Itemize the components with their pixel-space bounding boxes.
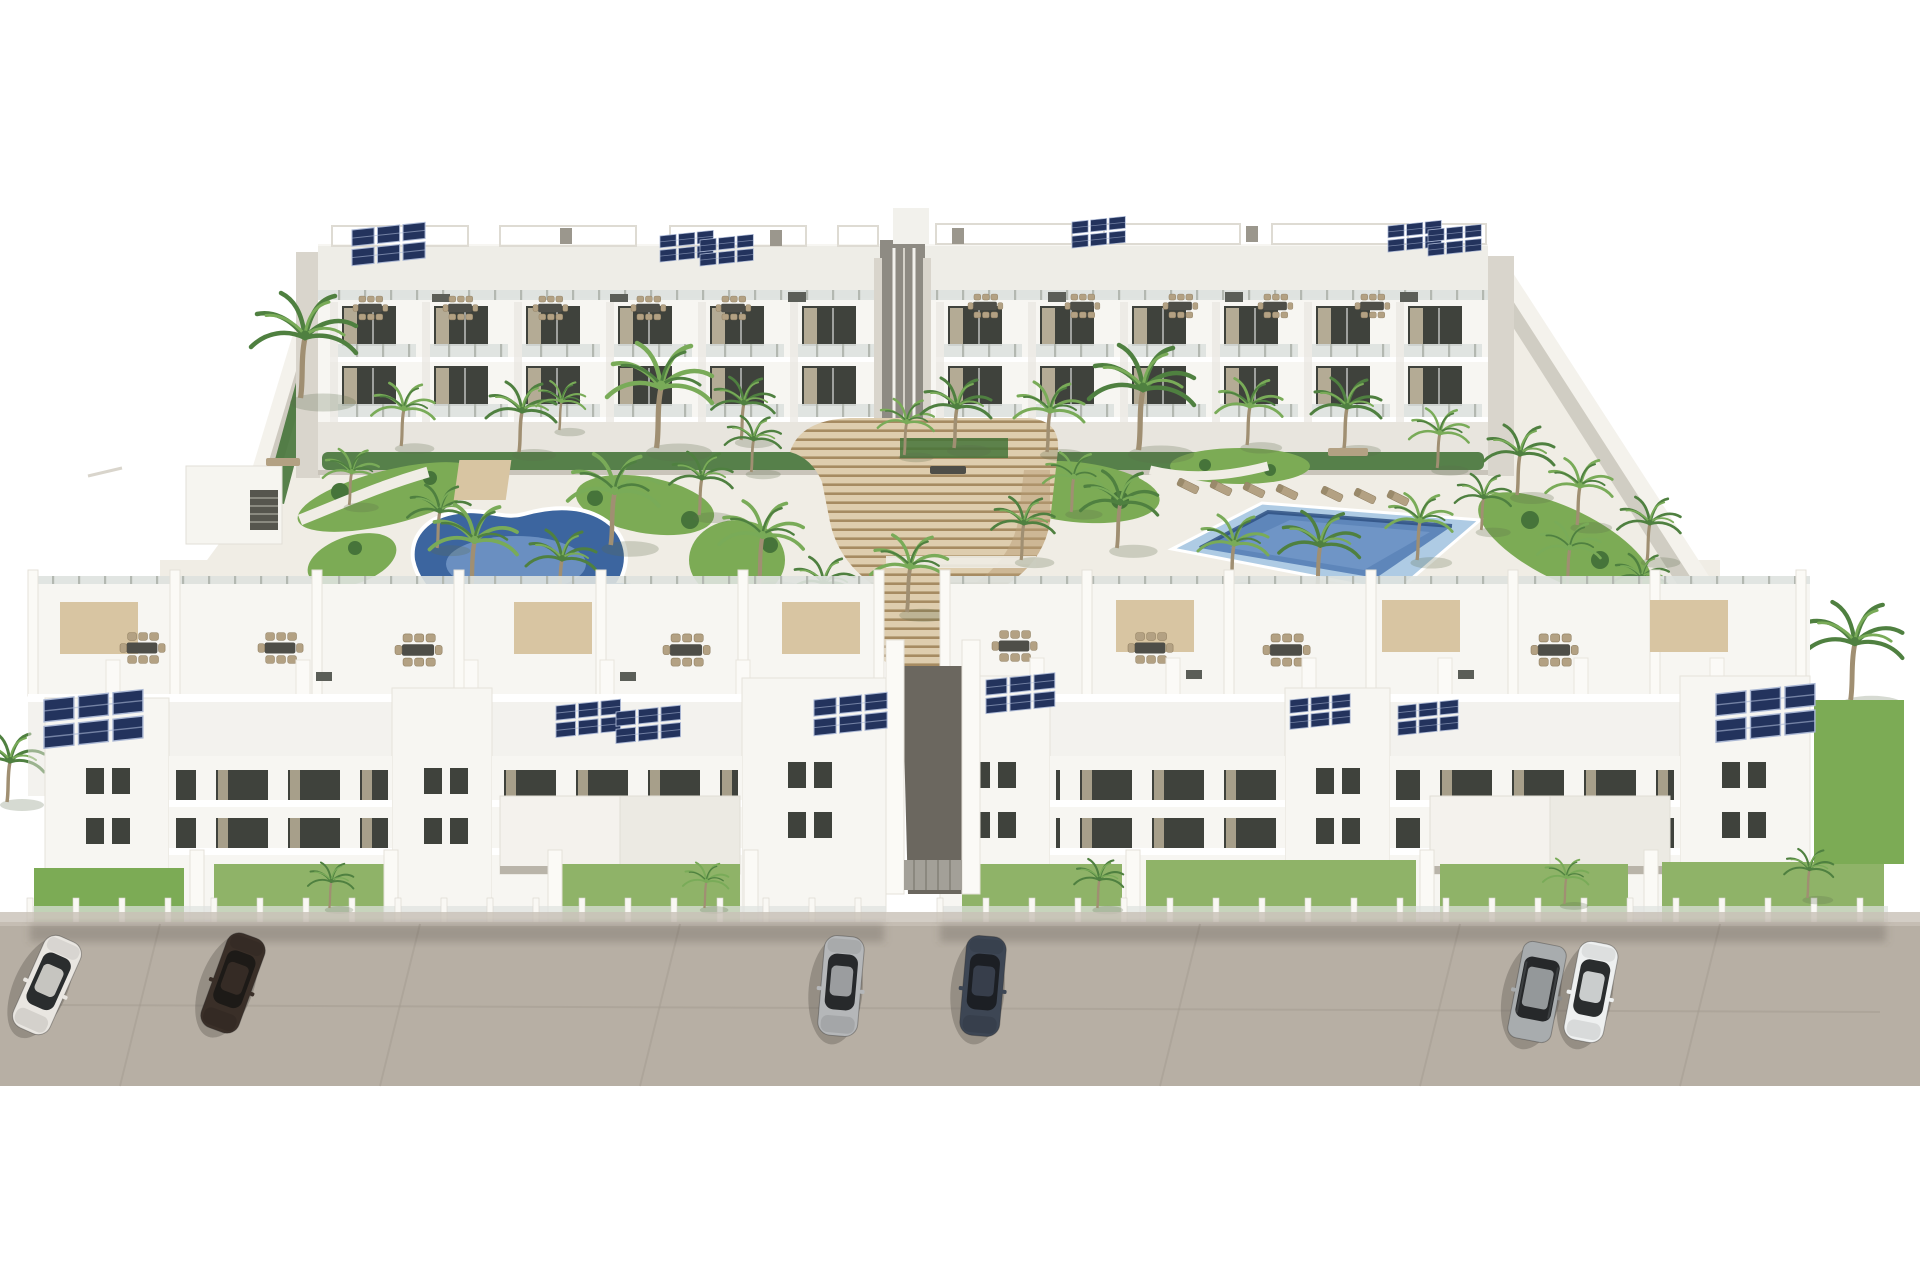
architectural-render xyxy=(0,0,1920,1280)
apartment-bay xyxy=(790,362,882,422)
central-gap xyxy=(874,208,931,422)
west-block-side-face xyxy=(296,252,320,478)
street-front-blocks xyxy=(27,570,1904,936)
walkway-gate xyxy=(904,860,962,890)
apartment-bay xyxy=(1304,302,1396,362)
fence-shadows xyxy=(30,924,1886,942)
sidewalk-strip xyxy=(0,912,1920,926)
apartment-bay xyxy=(1120,362,1212,422)
service-ramp xyxy=(250,490,278,530)
terrace-pergola-canopy xyxy=(514,602,592,654)
apartment-bay xyxy=(790,302,882,362)
street xyxy=(0,912,1920,1086)
west-pool-pergola xyxy=(454,460,512,500)
garden-bench xyxy=(930,466,966,474)
apartment-bay xyxy=(936,362,1028,422)
apartment-bay xyxy=(936,302,1028,362)
east-block-balcony-bays xyxy=(936,302,1488,422)
garden-bench xyxy=(266,458,300,466)
apartment-bay xyxy=(1396,302,1488,362)
apartment-bay xyxy=(1396,362,1488,422)
terrace-pergola-canopy xyxy=(1382,600,1460,652)
apartment-bay xyxy=(1212,302,1304,362)
central-walkway xyxy=(886,640,980,894)
apartment-bay xyxy=(422,362,514,422)
front-garden-lawn xyxy=(1814,700,1904,864)
terrace-pergola-canopy xyxy=(782,602,860,654)
garden-bench xyxy=(1328,448,1368,456)
terrace-pergola-canopy xyxy=(1650,600,1728,652)
apartment-bay xyxy=(1028,302,1120,362)
